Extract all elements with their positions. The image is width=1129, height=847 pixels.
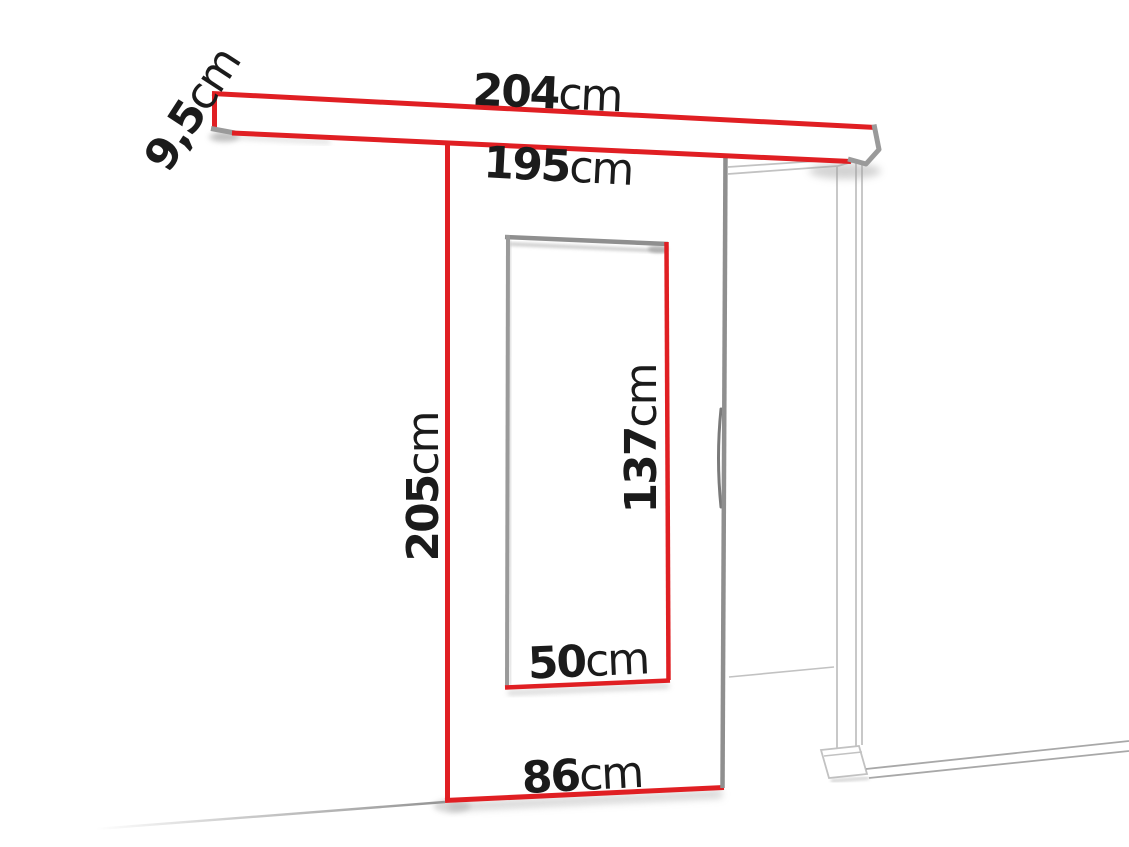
door-bottom-width-dimension-label: 86cm [521,751,643,801]
floor-line-left [96,802,445,829]
glass-height-unit: cm [616,365,667,428]
door-top-width-dimension-label: 195cm [482,141,633,193]
glass-width-dimension-label: 50cm [527,637,649,686]
rail-width-unit: cm [557,69,622,123]
frame-plinth-block [821,746,867,778]
glass-width-unit: cm [584,633,649,687]
glass-height-value: 137 [616,428,667,514]
door-bottom-width-unit: cm [578,747,644,801]
door-top-width-value: 195 [482,137,570,192]
mirror-left-inner-shadow [510,240,511,686]
glass-width-value: 50 [527,636,586,689]
door-right-edge [723,153,726,788]
door-top-width-unit: cm [568,142,634,196]
rail-right-end-shadow [809,163,881,179]
door-height-unit: cm [398,413,449,476]
glass-height-dimension-label: 137cm [620,365,664,514]
rail-width-dimension-label: 204cm [472,69,623,120]
door-bottom-width-value: 86 [521,750,581,804]
wall-line-behind-door [729,667,834,677]
door-height-value: 205 [398,476,449,562]
plinth-shadow [831,778,869,781]
door-panel [445,133,728,803]
door-height-dimension-label: 205cm [402,413,446,562]
rail-width-value: 204 [471,65,559,120]
mirror-frame-left-edge [507,235,508,689]
sliding-door-dimension-diagram: 204cm 195cm 9,5cm 205cm 137cm 50cm 86cm [0,0,1129,847]
